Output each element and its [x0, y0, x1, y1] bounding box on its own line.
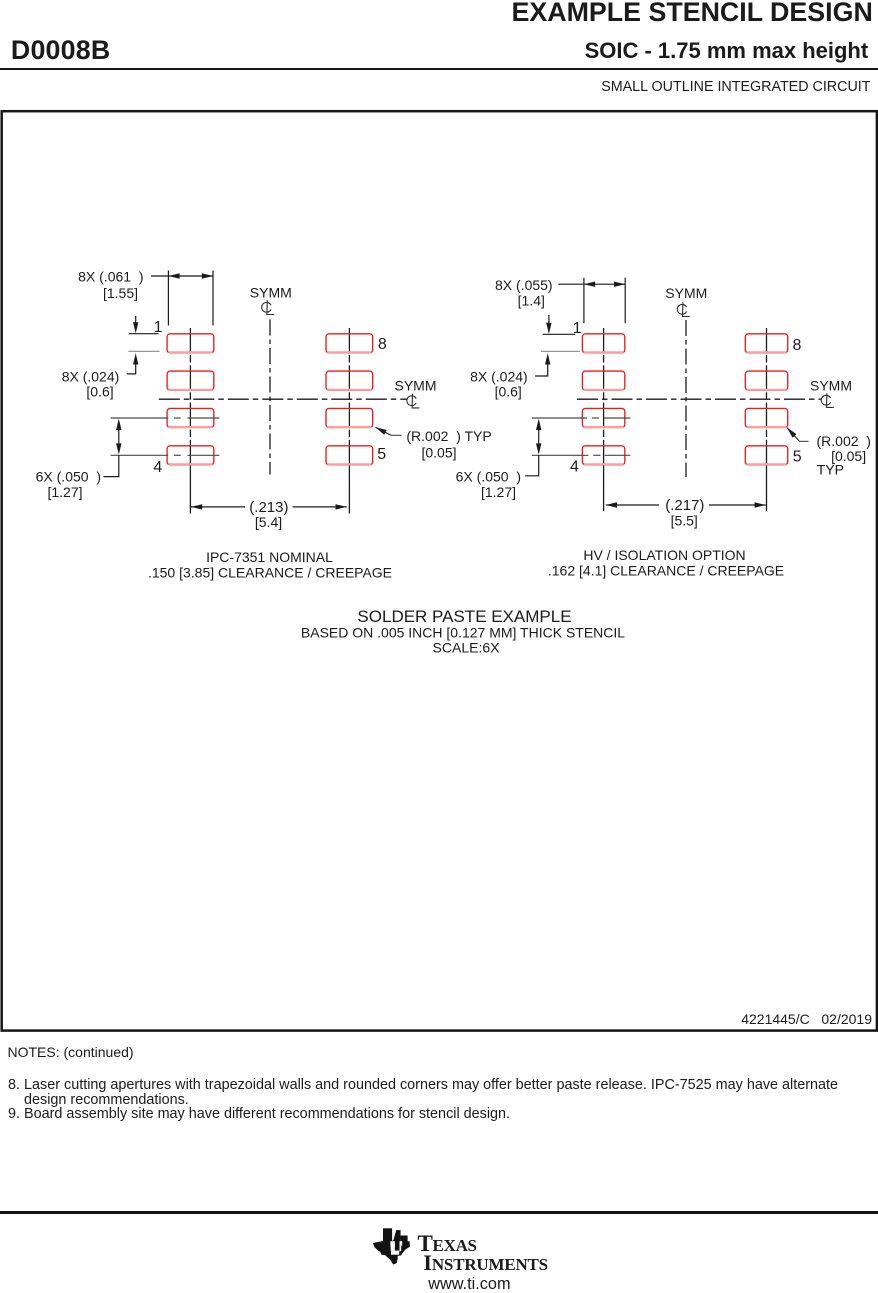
svg-text:6X (.050 ): 6X (.050 )	[36, 469, 101, 485]
svg-text:SYMM: SYMM	[665, 285, 707, 301]
svg-text:8X (.055): 8X (.055)	[495, 277, 553, 293]
svg-text:8X (.061 ): 8X (.061 )	[78, 269, 143, 285]
svg-text:[5.4]: [5.4]	[255, 514, 282, 530]
svg-text:.150 [3.85] CLEARANCE / CREEPA: .150 [3.85] CLEARANCE / CREEPAGE	[148, 565, 392, 581]
svg-text:.162 [4.1] CLEARANCE / CREEPAG: .162 [4.1] CLEARANCE / CREEPAGE	[548, 563, 784, 579]
svg-text:4221445/C 02/2019: 4221445/C 02/2019	[741, 1011, 872, 1027]
svg-text:SYMM: SYMM	[250, 285, 292, 301]
svg-text:8X (.024): 8X (.024)	[62, 368, 120, 384]
svg-text:SOLDER PASTE EXAMPLE: SOLDER PASTE EXAMPLE	[357, 607, 571, 626]
svg-text:BASED ON .005 INCH [0.127 MM]: BASED ON .005 INCH [0.127 MM] THICK STEN…	[301, 624, 625, 640]
svg-text:1: 1	[573, 320, 582, 337]
svg-text:SCALE:6X: SCALE:6X	[433, 640, 501, 656]
svg-text:[0.6]: [0.6]	[495, 384, 522, 400]
svg-text:[1.27]: [1.27]	[481, 484, 516, 500]
svg-text:HV / ISOLATION OPTION: HV / ISOLATION OPTION	[583, 547, 745, 563]
svg-text:4: 4	[153, 459, 162, 476]
svg-text:SYMM: SYMM	[810, 378, 852, 394]
svg-text:[1.55]: [1.55]	[103, 285, 138, 301]
svg-text:[1.4]: [1.4]	[518, 293, 545, 309]
svg-text:8: 8	[793, 337, 802, 354]
svg-text:[1.27]: [1.27]	[47, 484, 82, 500]
svg-text:IPC-7351 NOMINAL: IPC-7351 NOMINAL	[206, 549, 333, 565]
svg-text:[0.6]: [0.6]	[86, 384, 113, 400]
svg-text:SYMM: SYMM	[395, 378, 437, 394]
svg-text:8: 8	[378, 336, 387, 353]
svg-text:4: 4	[570, 459, 579, 476]
svg-text:5: 5	[793, 449, 802, 466]
svg-text:[0.05]: [0.05]	[421, 445, 456, 461]
svg-text:TYP: TYP	[817, 462, 844, 478]
svg-text:5: 5	[377, 446, 386, 463]
svg-text:(R.002 ) TYP: (R.002 ) TYP	[406, 428, 491, 444]
svg-text:[5.5]: [5.5]	[671, 512, 698, 528]
svg-text:6X (.050 ): 6X (.050 )	[456, 469, 521, 485]
svg-text:(R.002 ): (R.002 )	[817, 433, 871, 449]
svg-text:8X (.024): 8X (.024)	[470, 368, 528, 384]
svg-text:1: 1	[154, 319, 163, 336]
